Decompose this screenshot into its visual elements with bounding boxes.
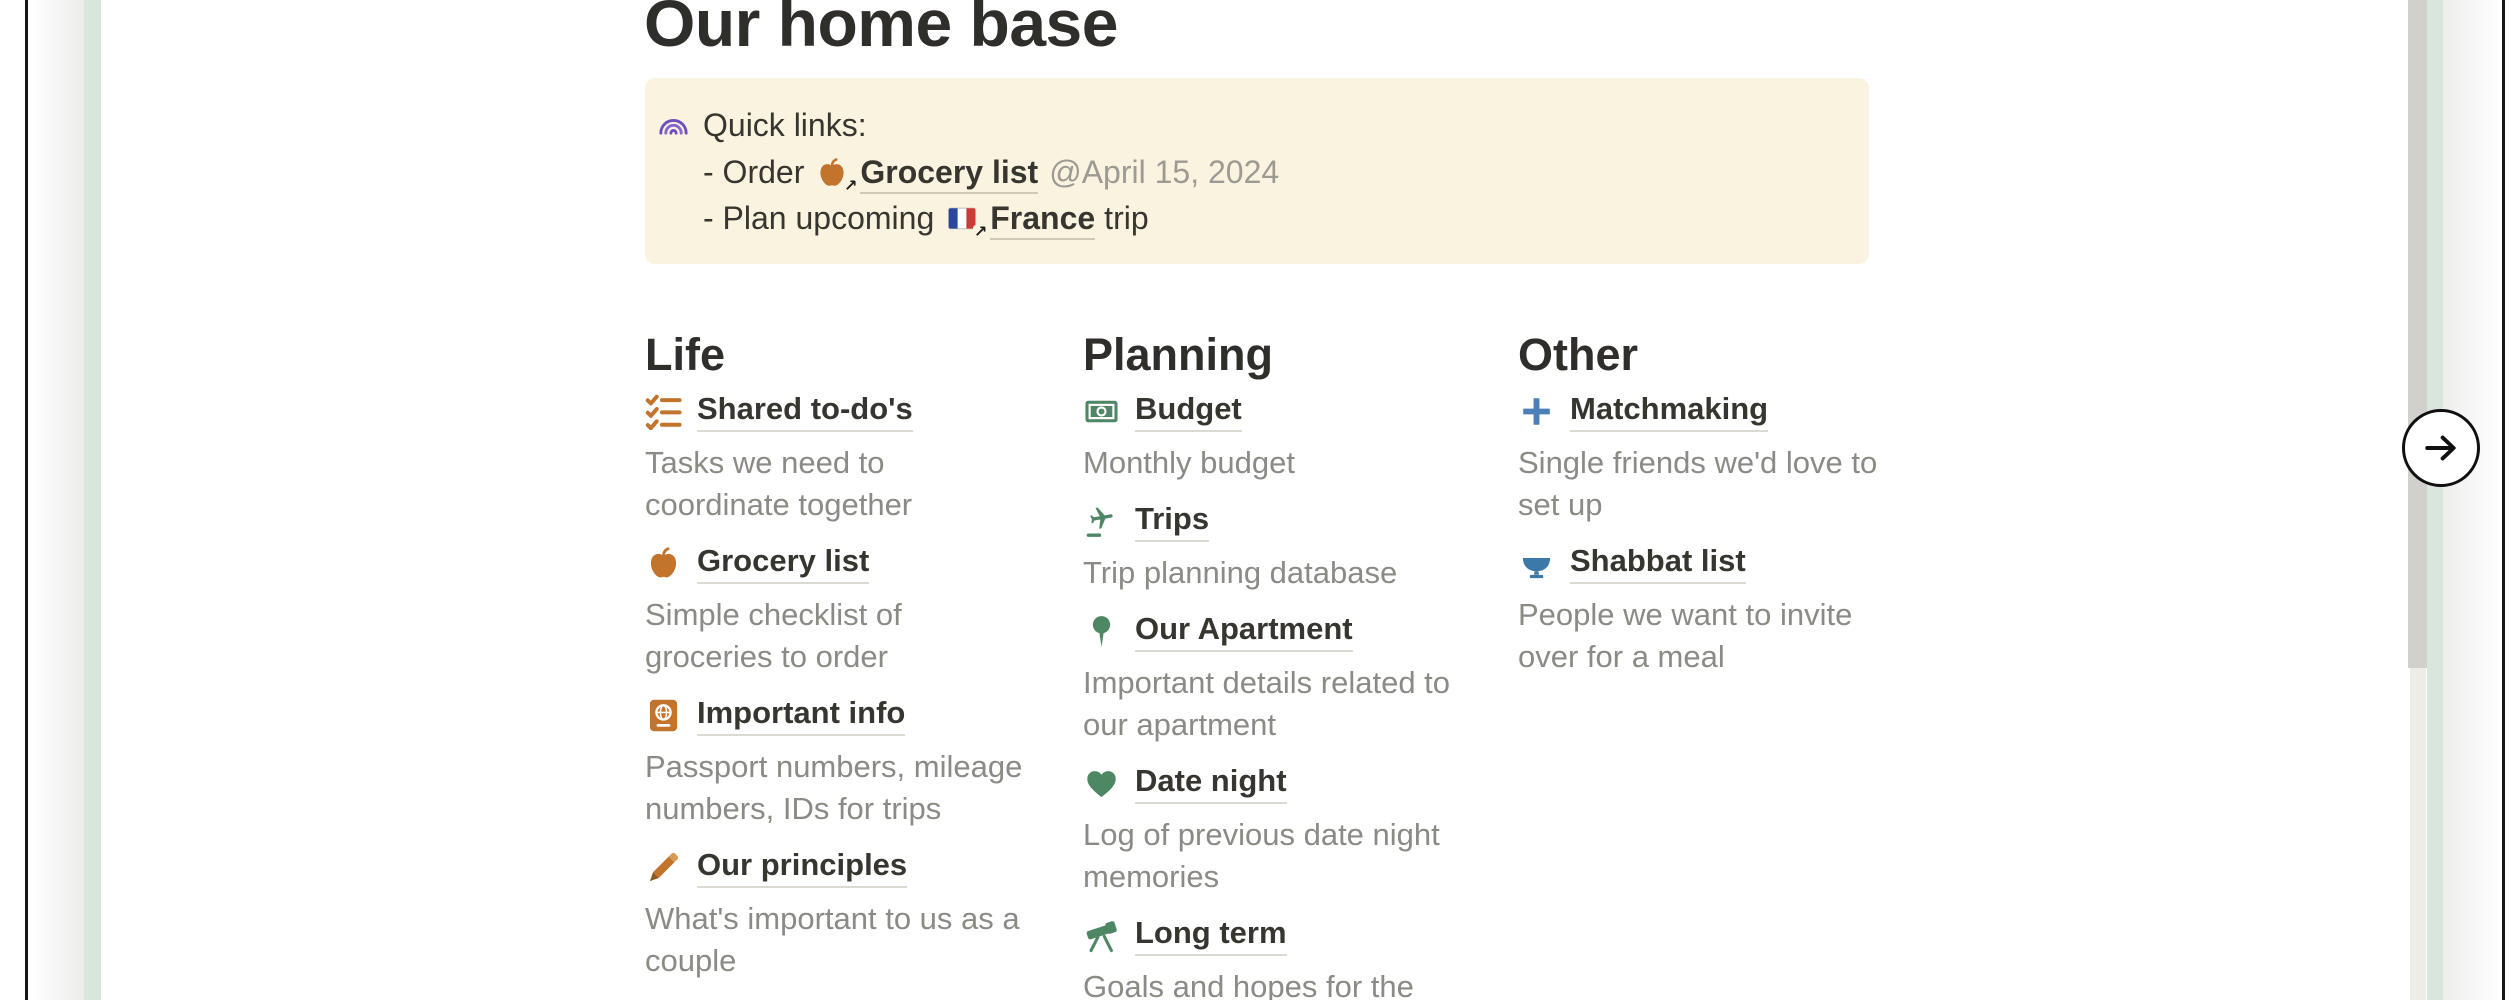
page-link-item: Important info Passport numbers, mileage… xyxy=(645,694,1075,830)
column-other: Other Matchmaking Single friends we'd lo… xyxy=(1518,332,1948,694)
date-mention: @April 15, 2024 xyxy=(1049,154,1279,190)
telescope-icon xyxy=(1083,917,1120,954)
page-link-label: Shabbat list xyxy=(1570,543,1746,584)
france-trip-link[interactable]: France xyxy=(990,200,1095,240)
page-link-description: People we want to invite over for a meal xyxy=(1518,594,1948,678)
adjacent-card-edge-right xyxy=(2427,0,2443,1000)
page-link-label: Budget xyxy=(1135,391,1242,432)
callout-body: Quick links: - Order ↗ Grocery list@Apri… xyxy=(703,102,1279,240)
page-link-label: Shared to-do's xyxy=(697,391,913,432)
arrow-right-icon xyxy=(2419,426,2463,470)
important-info-link[interactable]: Important info xyxy=(645,694,1075,736)
page-link-description: Important details related to our apartme… xyxy=(1083,662,1513,746)
page-link-description: Monthly budget xyxy=(1083,442,1513,484)
bowl-icon xyxy=(1518,545,1555,582)
plus-icon xyxy=(1518,393,1555,430)
grocery-list-link[interactable]: Grocery list xyxy=(860,154,1038,194)
page-link-description: Log of previous date night memories xyxy=(1083,814,1513,898)
airplane-icon xyxy=(1083,503,1120,540)
page-link-label: Grocery list xyxy=(697,543,869,584)
pencil-icon xyxy=(645,849,682,886)
callout-link-line: - Plan upcoming ↗ Francetrip xyxy=(703,195,1279,242)
france-flag-icon: ↗ xyxy=(945,202,979,236)
right-card-shadow xyxy=(2443,0,2502,1000)
rainbow-icon xyxy=(657,102,693,240)
page-link-label: Trips xyxy=(1135,501,1209,542)
callout-line-prefix: - Plan upcoming xyxy=(703,200,934,236)
callout-link-line: - Order ↗ Grocery list@April 15, 2024 xyxy=(703,149,1279,196)
page-link-description: Single friends we'd love to set up xyxy=(1518,442,1948,526)
round-pushpin-icon xyxy=(1083,613,1120,650)
budget-link[interactable]: Budget xyxy=(1083,390,1513,432)
page-link-label: Our Apartment xyxy=(1135,611,1353,652)
page-link-item: Long term Goals and hopes for the xyxy=(1083,914,1513,1000)
page-link-item: Our principles What's important to us as… xyxy=(645,846,1075,982)
page-link-item: Date night Log of previous date night me… xyxy=(1083,762,1513,898)
checklist-icon xyxy=(645,393,682,430)
page-link-label: Important info xyxy=(697,695,905,736)
page-link-item: Matchmaking Single friends we'd love to … xyxy=(1518,390,1948,526)
page-link-label: Long term xyxy=(1135,915,1287,956)
left-card-shadow xyxy=(30,0,84,1000)
grocery-list-link[interactable]: Grocery list xyxy=(645,542,1075,584)
page-link-description: Goals and hopes for the xyxy=(1083,966,1513,1000)
carousel-next-button[interactable] xyxy=(2402,409,2480,487)
our-principles-link[interactable]: Our principles xyxy=(645,846,1075,888)
matchmaking-link[interactable]: Matchmaking xyxy=(1518,390,1948,432)
scrollbar-thumb[interactable] xyxy=(2408,0,2427,668)
date-night-link[interactable]: Date night xyxy=(1083,762,1513,804)
trips-link[interactable]: Trips xyxy=(1083,500,1513,542)
frame-right-border xyxy=(2502,0,2505,1000)
page-link-description: What's important to us as a couple xyxy=(645,898,1075,982)
frame-left-border xyxy=(25,0,28,1000)
page-link-label: Our principles xyxy=(697,847,907,888)
our-apartment-link[interactable]: Our Apartment xyxy=(1083,610,1513,652)
column-planning: Planning Budget Monthly budget xyxy=(1083,332,1513,1000)
column-heading: Other xyxy=(1518,332,1948,378)
column-heading: Life xyxy=(645,332,1075,378)
column-life: Life Shared to-do's Tasks we need to coo… xyxy=(645,332,1075,998)
page-link-item: Our Apartment Important details related … xyxy=(1083,610,1513,746)
page-link-arrow-icon: ↗ xyxy=(973,225,988,241)
page-link-arrow-icon: ↗ xyxy=(843,179,858,195)
apple-icon xyxy=(645,545,682,582)
long-term-link[interactable]: Long term xyxy=(1083,914,1513,956)
page-link-item: Trips Trip planning database xyxy=(1083,500,1513,594)
page-link-label: Matchmaking xyxy=(1570,391,1768,432)
template-preview-card: Our home base Quick links: - Order ↗ Gro… xyxy=(0,0,2520,1000)
page-link-item: Budget Monthly budget xyxy=(1083,390,1513,484)
callout-line-prefix: - Order xyxy=(703,154,804,190)
page-link-label: Date night xyxy=(1135,763,1287,804)
page-link-description: Trip planning database xyxy=(1083,552,1513,594)
page-link-description: Passport numbers, mileage numbers, IDs f… xyxy=(645,746,1075,830)
shared-todos-link[interactable]: Shared to-do's xyxy=(645,390,1075,432)
quick-links-callout: Quick links: - Order ↗ Grocery list@Apri… xyxy=(645,78,1869,264)
passport-icon xyxy=(645,697,682,734)
page-link-description: Simple checklist of groceries to order xyxy=(645,594,1075,678)
page-link-item: Shared to-do's Tasks we need to coordina… xyxy=(645,390,1075,526)
page-title: Our home base xyxy=(644,0,1118,56)
page-link-item: Grocery list Simple checklist of groceri… xyxy=(645,542,1075,678)
callout-line-suffix: trip xyxy=(1104,200,1148,236)
shabbat-list-link[interactable]: Shabbat list xyxy=(1518,542,1948,584)
apple-icon: ↗ xyxy=(815,156,849,190)
banknote-icon xyxy=(1083,393,1120,430)
column-heading: Planning xyxy=(1083,332,1513,378)
callout-heading: Quick links: xyxy=(703,102,1279,149)
page-link-description: Tasks we need to coordinate together xyxy=(645,442,1075,526)
page-link-item: Shabbat list People we want to invite ov… xyxy=(1518,542,1948,678)
heart-icon xyxy=(1083,765,1120,802)
adjacent-card-edge-left xyxy=(84,0,101,1000)
